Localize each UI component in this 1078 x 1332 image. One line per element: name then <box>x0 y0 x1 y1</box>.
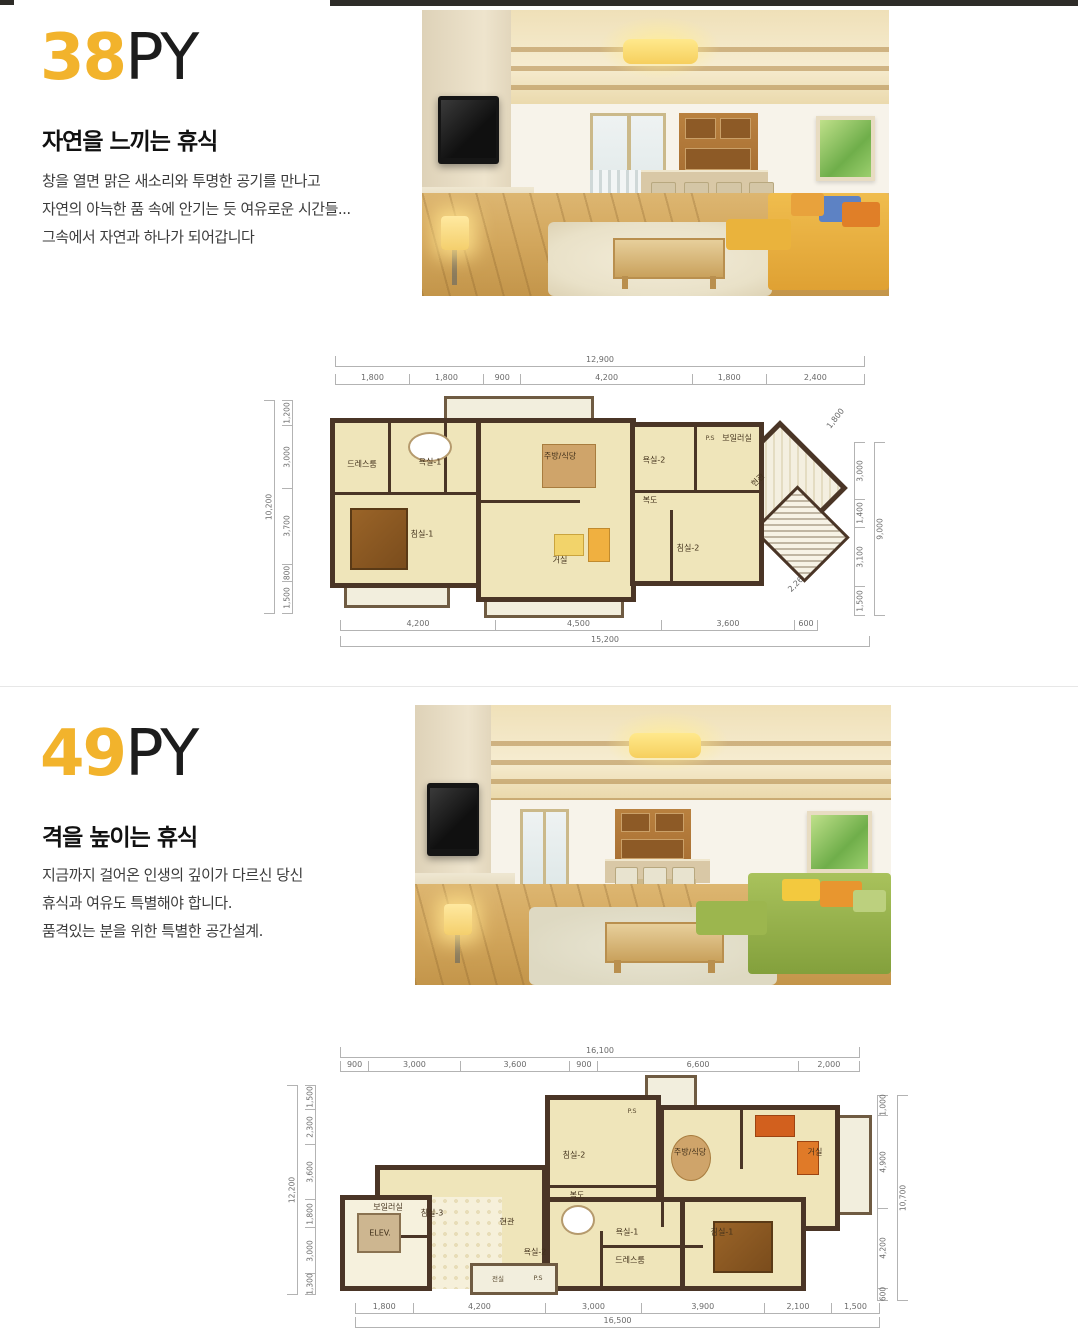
dim-left-segments: 1,5002,3003,6001,8003,0001,300 <box>305 1085 316 1295</box>
floorplan-38py: 12,900 1,8001,8009004,2001,8002,400 10,2… <box>258 352 926 668</box>
room-label-living: 거실 <box>553 555 568 566</box>
plan-wall <box>670 510 673 586</box>
unit-size-suffix: PY <box>125 21 197 95</box>
photo-window <box>520 809 569 891</box>
room-label-bath2: 욕실-2 <box>524 1247 547 1258</box>
page: 38PY 자연을 느끼는 휴식 창을 열면 맑은 새소리와 투명한 공기를 만나… <box>0 0 1078 1332</box>
room-label-bath1: 욕실-1 <box>616 1227 639 1238</box>
photo-cushion-yellow <box>791 193 824 216</box>
section-heading-49py: 격을 높이는 휴식 <box>42 818 197 852</box>
unit-size-number: 38 <box>40 21 125 95</box>
room-label-boiler: 보일러실 <box>722 433 751 444</box>
dim-bottom-total: 16,500 <box>355 1317 880 1328</box>
plan-wall <box>549 1185 661 1188</box>
photo-coffee-table <box>613 238 724 279</box>
plan-wall <box>600 1231 603 1289</box>
room-label-hall: 복도 <box>570 1190 585 1201</box>
body-line: 창을 열면 맑은 새소리와 투명한 공기를 만나고 <box>42 168 351 196</box>
unit-size-title-38py: 38PY <box>40 26 197 90</box>
photo-pendant-lamp <box>629 733 700 758</box>
unit-size-number: 49 <box>40 717 125 791</box>
room-label-ps1: P.S <box>627 1107 636 1115</box>
room-label-bed1: 침실-1 <box>411 529 434 540</box>
dim-left-total: 12,200 <box>287 1085 298 1295</box>
room-label-living: 거실 <box>808 1147 823 1158</box>
dim-right-total: 10,700 <box>897 1095 908 1301</box>
dim-top-segments: 1,8001,8009004,2001,8002,400 <box>335 374 865 385</box>
dim-top-total: 16,100 <box>340 1047 860 1058</box>
plan-wall <box>740 1109 743 1169</box>
dim-left-segments: 1,2003,0003,7008001,500 <box>282 400 293 614</box>
dim-diagonal-top-right: 1,800 <box>825 407 846 431</box>
dim-bottom-total: 15,200 <box>340 636 870 647</box>
room-label-kitchen: 주방/식당 <box>674 1147 706 1158</box>
dim-bottom-segments: 1,8004,2003,0003,9002,1001,500 <box>355 1303 880 1314</box>
plan-wall <box>603 1245 703 1248</box>
room-label-bath2: 욕실-2 <box>643 455 666 466</box>
floorplan-49py: 16,100 9003,0003,6009006,6002,000 12,200… <box>285 1045 953 1332</box>
room-label-bath1: 욕실-1 <box>419 457 442 468</box>
dim-top-total: 12,900 <box>335 356 865 367</box>
photo-floor-lamp-stand <box>452 245 457 285</box>
room-label-hall: 복도 <box>643 495 658 506</box>
photo-cushion-orange <box>842 202 879 228</box>
photo-cushion-green <box>853 890 886 912</box>
unit-size-suffix: PY <box>125 717 197 791</box>
section-divider <box>0 686 1078 687</box>
body-line: 자연의 아늑한 품 속에 안기는 듯 여유로운 시간들... <box>42 196 351 224</box>
plan-wall <box>480 500 580 503</box>
plan-bathtub <box>561 1205 595 1235</box>
room-label-dress: 드레스룸 <box>347 459 376 470</box>
photo-kitchen-cabinets <box>615 809 691 865</box>
dim-right-segments: 1,0004,9004,200600 <box>877 1095 888 1301</box>
plan-bed <box>350 508 408 570</box>
room-label-entrance: 현관 <box>500 1217 515 1228</box>
plan-wall <box>661 1109 664 1227</box>
top-crop-bar <box>330 0 1078 6</box>
plan-sofa <box>554 534 584 556</box>
photo-tv <box>427 783 479 856</box>
dim-left-total: 10,200 <box>264 400 275 614</box>
photo-chaise <box>696 901 767 935</box>
section-heading-38py: 자연을 느끼는 휴식 <box>42 122 217 156</box>
room-label-bed1: 침실-1 <box>711 1227 734 1238</box>
section-body-49py: 지금까지 걸어온 인생의 깊이가 다르신 당신 휴식과 여유도 특별해야 합니다… <box>42 862 303 945</box>
dim-top-segments: 9003,0003,6009006,6002,000 <box>340 1061 860 1072</box>
plan-dining-table <box>671 1135 711 1181</box>
body-line: 지금까지 걸어온 인생의 깊이가 다르신 당신 <box>42 862 303 890</box>
dim-right-total: 9,000 <box>874 442 885 616</box>
photo-floor-lamp <box>441 216 469 250</box>
plan-wall <box>630 490 764 493</box>
room-label-kitchen: 주방/식당 <box>544 451 576 462</box>
unit-size-title-49py: 49PY <box>40 722 197 786</box>
plan-sofa <box>755 1115 795 1137</box>
photo-cushion-yellow <box>782 879 820 901</box>
top-left-crop-mark <box>0 0 14 5</box>
body-line: 품격있는 분을 위한 특별한 공간설계. <box>42 918 303 946</box>
photo-wall-art <box>807 811 872 872</box>
plan-armchair <box>588 528 610 562</box>
plan-wall <box>334 492 480 495</box>
dim-bottom-segments: 4,2004,5003,600600 <box>340 620 818 631</box>
room-label-bed2: 침실-2 <box>563 1150 586 1161</box>
section-body-38py: 창을 열면 맑은 새소리와 투명한 공기를 만나고 자연의 아늑한 품 속에 안… <box>42 168 351 251</box>
photo-pendant-lamp <box>623 39 698 65</box>
room-label-bed3: 침실-3 <box>421 1208 444 1219</box>
interior-photo-49py <box>415 705 891 985</box>
plan-vestibule <box>470 1263 558 1295</box>
room-label-boiler: 보일러실 <box>373 1202 402 1213</box>
plan-wall <box>694 422 697 492</box>
photo-ottoman <box>726 219 791 250</box>
interior-photo-38py <box>422 10 889 296</box>
photo-table-lamp <box>444 904 473 935</box>
body-line: 그속에서 자연과 하나가 되어갑니다 <box>42 224 351 252</box>
photo-tv <box>438 96 499 165</box>
photo-kitchen-cabinets <box>679 113 758 176</box>
room-label-vestibule: 전실 <box>492 1273 504 1283</box>
body-line: 휴식과 여유도 특별해야 합니다. <box>42 890 303 918</box>
photo-wall-art <box>816 116 875 181</box>
plan-wall <box>388 418 391 494</box>
room-label-ps2: P.S <box>533 1274 542 1282</box>
room-label-elev: ELEV. <box>369 1229 391 1238</box>
room-label-ps: P.S <box>705 434 714 442</box>
dim-right-segments: 3,0001,4003,1001,500 <box>854 442 865 616</box>
room-label-dress: 드레스룸 <box>615 1255 644 1266</box>
room-label-bed2: 침실-2 <box>677 543 700 554</box>
